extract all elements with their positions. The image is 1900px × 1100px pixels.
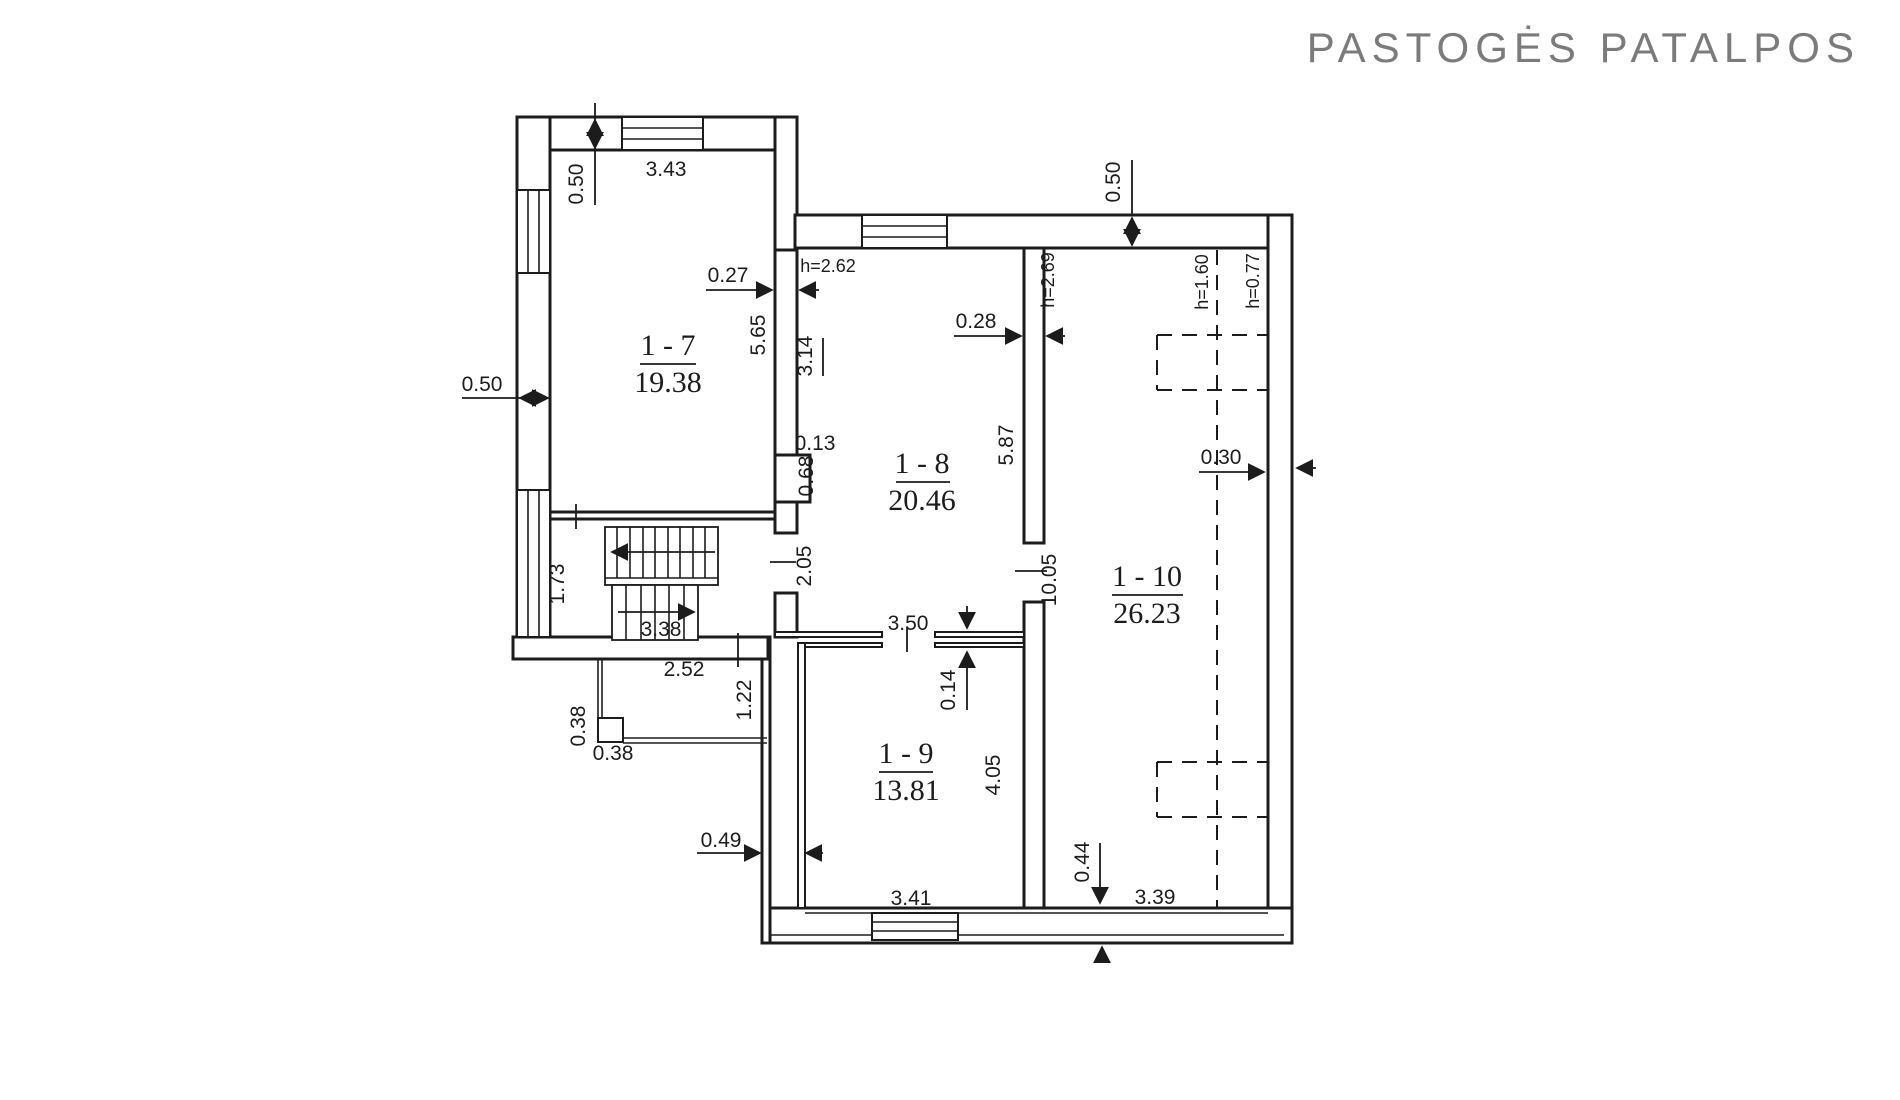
- dashed-dormer-upper: [1157, 335, 1268, 390]
- window-left-lower: [517, 490, 550, 637]
- room-18-name: 1 - 8: [895, 447, 950, 480]
- dim-wall-18-110: 0.28: [956, 310, 997, 333]
- dim-notch-depth: 0.13: [795, 432, 836, 455]
- dim-post-width: 0.38: [593, 742, 634, 765]
- dim-room110-height: 10.05: [1038, 554, 1061, 607]
- porch-post: [598, 718, 623, 742]
- window-bottom-19: [872, 913, 958, 940]
- dim-porch-width: 2.52: [664, 658, 705, 681]
- dim-room19-height: 4.05: [982, 755, 1005, 796]
- dim-stair-run: 3.38: [641, 618, 682, 641]
- dim-wall-19-left: 0.49: [701, 829, 742, 852]
- height-room110-eave: h=0.77: [1243, 253, 1263, 309]
- height-room110-left: h=2.69: [1038, 252, 1058, 308]
- wall-thin-19-left: [798, 643, 882, 647]
- dim-room19-top: 3.50: [888, 612, 929, 635]
- dim-stair-hall-height: 2.05: [793, 546, 816, 587]
- room-19-area: 13.81: [872, 774, 940, 807]
- dashed-dormer-lower: [1157, 762, 1268, 817]
- dimension-labels: 3.43 0.50 0.50 5.65 0.27 h=2.62 3.14 0.1…: [462, 158, 1263, 910]
- wall-thin-18-left: [775, 632, 882, 637]
- dim-wall-left: 0.50: [462, 373, 503, 396]
- floor-plan-drawing: 3.43 0.50 0.50 5.65 0.27 h=2.62 3.14 0.1…: [0, 0, 1900, 1100]
- wall-19-left: [798, 643, 805, 908]
- wall-left-bottom-section: [762, 637, 770, 943]
- dim-wall-top-right: 0.50: [1102, 162, 1125, 203]
- dim-room18-left: 3.14: [794, 335, 817, 376]
- dim-post-height: 0.38: [567, 706, 590, 747]
- dim-notch-height: 0.68: [795, 456, 818, 497]
- wall-divider-below-notch: [775, 502, 797, 533]
- dim-wall-17-18: 0.27: [708, 264, 749, 287]
- room-110-name: 1 - 10: [1112, 560, 1182, 593]
- dim-knee-wall: 0.30: [1201, 446, 1242, 469]
- wall-stair-door-lower: [775, 593, 797, 637]
- dim-room110-width: 3.39: [1135, 886, 1176, 909]
- room-17-area: 19.38: [634, 366, 702, 399]
- window-top-17: [622, 117, 703, 150]
- room-110-area: 26.23: [1113, 597, 1181, 630]
- dim-wall-bottom: 0.44: [1071, 841, 1094, 882]
- dim-stair-hall: 1.73: [546, 564, 569, 605]
- dim-room19-width: 3.41: [891, 887, 932, 910]
- height-room110-ridge: h=1.60: [1192, 254, 1212, 310]
- dim-room18-height: 5.87: [995, 425, 1018, 466]
- room-17-name: 1 - 7: [641, 329, 696, 362]
- floor-plan-page: PASTOGĖS PATALPOS: [0, 0, 1900, 1100]
- room-19-name: 1 - 9: [879, 737, 934, 770]
- dim-room17-width: 3.43: [646, 158, 687, 181]
- window-top-main: [862, 215, 947, 248]
- wall-17-bottom: [550, 512, 775, 519]
- window-left-upper: [517, 190, 550, 273]
- wall-thin-19-right: [935, 643, 1024, 647]
- wall-divider-18-110-lower: [1024, 602, 1044, 908]
- dim-porch-depth: 1.22: [733, 680, 756, 721]
- wall-thin-18-right: [935, 632, 1024, 637]
- room-18-area: 20.46: [888, 484, 956, 517]
- dim-room17-height: 5.65: [747, 315, 770, 356]
- stair-upper-flight: [605, 527, 718, 585]
- dim-wall-top-left: 0.50: [565, 164, 588, 205]
- wall-right: [1268, 215, 1292, 943]
- dim-wall-18-19: 0.14: [937, 669, 960, 710]
- height-room18: h=2.62: [800, 256, 856, 276]
- windows: [517, 117, 958, 940]
